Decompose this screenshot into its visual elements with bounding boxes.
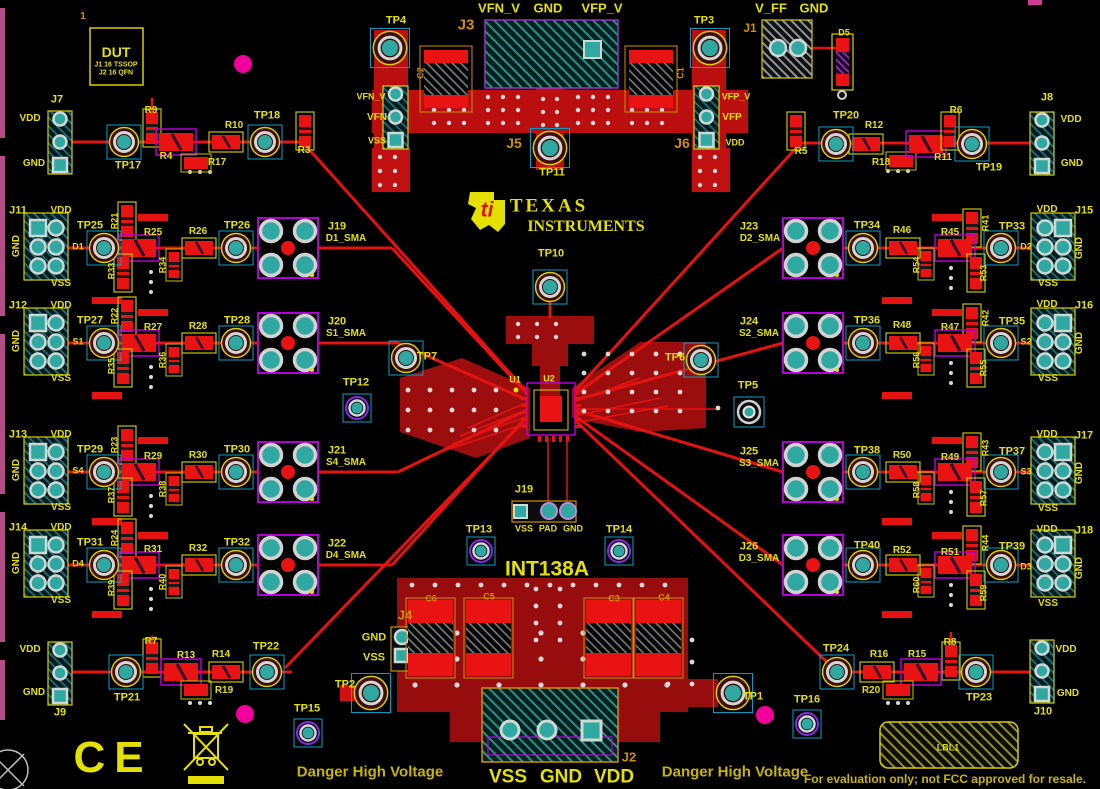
via [606,108,610,112]
via [538,682,543,687]
via [472,408,477,413]
via [654,352,659,357]
copper-shape [692,148,730,192]
sma-pad [820,445,841,466]
connector-pad [1035,687,1049,701]
via [582,352,587,357]
connector-pad [54,667,67,680]
via [645,121,649,125]
via [606,409,611,414]
sma-pad [295,221,316,242]
via [149,494,153,498]
mounting-mark-icon [0,750,28,789]
via [582,371,587,376]
via [591,108,595,112]
sma-center-pin [806,241,820,255]
connector-pad [1036,642,1049,655]
via [496,682,501,687]
via [949,276,953,280]
connector-pad [1055,220,1071,236]
connector-pad [1056,464,1071,479]
sma-pad [295,445,316,466]
connector-pad [1038,221,1053,236]
via [606,371,611,376]
via [149,514,153,518]
sma-pad [295,255,316,276]
connector-pad [1038,354,1053,369]
connector-pad [49,335,64,350]
via [716,406,721,411]
via [188,701,192,705]
via [198,701,202,705]
via [606,390,611,395]
via [501,108,505,112]
copper-pour [572,342,706,432]
connector-pad [30,444,46,460]
connector-pad [1056,483,1071,498]
via [630,371,635,376]
sma-pad [295,538,316,559]
via [486,121,490,125]
via [149,597,153,601]
via [580,682,585,687]
via [516,108,520,112]
connector-pad [389,111,402,124]
via [654,390,659,395]
connector-pad [1056,240,1071,255]
via [580,656,585,661]
connector-pad [1038,464,1053,479]
via [838,91,846,99]
connector-pad [1038,335,1053,350]
via [534,604,539,609]
via [472,388,477,393]
via [516,322,520,326]
connector-pad [54,113,67,126]
via [666,682,671,687]
via [606,95,610,99]
connector-pad [700,88,713,101]
via [622,682,627,687]
via [663,583,668,588]
via [949,500,953,504]
via [949,583,953,587]
via [713,155,717,159]
sma-pad [786,572,807,593]
connector-pad [1056,354,1071,369]
connector-pad [1056,576,1071,591]
sma-pad [786,479,807,500]
via [456,583,461,588]
via [541,110,545,114]
copper-shape [138,437,168,444]
connector-pad [1038,259,1053,274]
copper-shape [0,156,5,316]
via [516,121,520,125]
sma-center-pin [806,465,820,479]
via [949,361,953,365]
via [486,108,490,112]
sma-pad [820,479,841,500]
connector-pad [49,316,64,331]
via [479,583,484,588]
via [535,335,539,339]
via [450,408,455,413]
connector-pad [1038,240,1053,255]
via [654,371,659,376]
copper-shape [882,392,912,399]
via [548,583,553,588]
sma-pad [295,479,316,500]
via [678,352,683,357]
via [149,587,153,591]
connector-pad [700,111,713,124]
via [591,95,595,99]
connector-pad [49,354,64,369]
connector-j19-aux-pad [514,505,527,518]
via [713,169,717,173]
connector-pad [1055,537,1071,553]
connector-j1-pad [790,40,806,56]
sma-pad [820,538,841,559]
via [534,621,539,626]
connector-pad [1055,444,1071,460]
via [501,95,505,99]
via [450,388,455,393]
dut-outline [90,28,143,85]
connector-pad [49,259,64,274]
connector-pad [1036,114,1049,127]
connector-pad [31,335,46,350]
via [555,110,559,114]
sma-pad [786,255,807,276]
copper-shape [92,611,122,618]
sma-center-pin [281,241,295,255]
via [949,371,953,375]
via [501,121,505,125]
connector-pad [389,133,403,147]
sma-center-pin [806,336,820,350]
copper-shape [1028,0,1042,5]
via [690,682,695,687]
via [406,388,411,393]
connector-pad [1038,557,1053,572]
via [698,169,702,173]
copper-shape [138,309,168,316]
connector-pad [49,464,64,479]
via [412,682,417,687]
via [576,121,580,125]
via [640,583,645,588]
sma-pad [261,445,282,466]
via [149,385,153,389]
connector-pad [49,483,64,498]
via [630,390,635,395]
via [591,121,595,125]
via [450,428,455,433]
sma-pad [786,538,807,559]
via [149,280,153,284]
via [630,121,634,125]
via [149,375,153,379]
via [472,428,477,433]
via [494,428,499,433]
sma-pad [261,572,282,593]
via [378,169,382,173]
via [378,155,382,159]
via [580,630,585,635]
sma-pad [786,316,807,337]
via [208,701,212,705]
via [541,97,545,101]
via [630,352,635,357]
via [558,604,563,609]
connector-j4-pad [395,630,409,644]
via [678,390,683,395]
copper-shape [932,214,962,221]
via [555,123,559,127]
ic-u1 [514,388,519,393]
via [949,266,953,270]
via [554,322,558,326]
connector-pad [31,240,46,255]
via [525,583,530,588]
via [406,408,411,413]
connector-pad [31,464,46,479]
connector-pad [1056,259,1071,274]
sma-center-pin [281,336,295,350]
via [949,490,953,494]
sma-pad [295,316,316,337]
connector-pad [1056,557,1071,572]
via [678,409,683,414]
connector-pad [1035,159,1049,173]
via [558,621,563,626]
via [555,97,559,101]
connector-pad [54,136,67,149]
connector-pad [49,538,64,553]
via [594,583,599,588]
connector-pad [1036,665,1049,678]
via [582,409,587,414]
via [378,183,382,187]
copper-shape [932,532,962,539]
sma-pad [820,316,841,337]
connector-pad [1055,315,1071,331]
via [406,428,411,433]
connector-pad [49,240,64,255]
via [538,656,543,661]
connector-pad [30,220,46,236]
via [393,183,397,187]
copper-shape [0,512,5,642]
fiducial-dot [756,706,774,724]
sma-center-pin [281,465,295,479]
connector-j19-aux-pad [541,503,557,519]
connector-pad [49,576,64,591]
via [571,583,576,588]
via [949,381,953,385]
via [630,409,635,414]
sma-pad [820,572,841,593]
copper-shape [138,214,168,221]
connector-pad [1038,316,1053,331]
via [886,701,890,705]
connector-pad [49,221,64,236]
copper-shape [0,8,5,138]
via [149,504,153,508]
via [538,630,543,635]
via [428,388,433,393]
connector-pad [1038,538,1053,553]
sma-pad [786,445,807,466]
via [541,123,545,127]
weee-icon [184,724,228,770]
via [486,95,490,99]
connector-j2-pad [582,721,601,740]
via [606,352,611,357]
via [617,583,622,588]
sma-center-pin [806,558,820,572]
connector-pad [31,483,46,498]
via [678,371,683,376]
via [949,286,953,290]
via [535,322,539,326]
copper-shape [188,776,224,784]
connector-j2-pad [501,721,519,739]
via [558,587,563,592]
via [558,638,563,643]
sma-pad [261,538,282,559]
copper-shape [92,392,122,399]
via [896,701,900,705]
via [393,169,397,173]
via [949,603,953,607]
via [516,335,520,339]
sma-pad [261,221,282,242]
connector-pad [31,259,46,274]
connector-pad [30,537,46,553]
sma-pad [786,221,807,242]
connector-pad [1056,335,1071,350]
via [433,583,438,588]
via [554,335,558,339]
via [690,660,695,665]
copper-shape [138,532,168,539]
via [454,682,459,687]
sma-pad [261,479,282,500]
via [698,183,702,187]
copper-shape [0,660,5,720]
copper-shape [372,148,410,192]
ti-logo-icon [468,192,505,232]
fiducial-dot [234,55,252,73]
via [494,408,499,413]
via [428,428,433,433]
connector-pad [389,88,402,101]
fiducial-dot [236,705,254,723]
connector-pad [31,557,46,572]
via [949,510,953,514]
sma-pad [820,221,841,242]
via [410,583,415,588]
connector-pad [31,576,46,591]
connector-pad [54,644,67,657]
connector-pad [53,689,67,703]
copper-shape [932,309,962,316]
label-box-lbl1 [880,722,1018,768]
via [949,593,953,597]
sma-pad [261,255,282,276]
via [534,638,539,643]
via [906,701,910,705]
via [149,607,153,611]
via [462,121,466,125]
sma-pad [261,316,282,337]
via [428,408,433,413]
via [690,638,695,643]
copper-shape [932,437,962,444]
via [698,155,702,159]
via [447,121,451,125]
connector-j3-pad [584,41,601,58]
via [576,95,580,99]
via [393,155,397,159]
via [713,183,717,187]
connector-pad [30,315,46,331]
connector-pad [700,133,714,147]
via [502,583,507,588]
via [149,365,153,369]
pcb-board: VFN_VGNDVFP_VV_FFGND1DUTJ1 16 TSSOPJ2 16… [0,0,1100,789]
copper-shape [882,518,912,525]
pcb-artwork [0,0,1100,789]
copper-shape [0,334,5,494]
connector-pad [49,445,64,460]
via [660,121,664,125]
via [576,108,580,112]
connector-pad [53,158,67,172]
via [582,390,587,395]
sma-pad [786,350,807,371]
sma-pad [261,350,282,371]
connector-j19-aux-pad [560,503,576,519]
trace [575,416,783,565]
sma-pad [295,350,316,371]
sma-pad [820,350,841,371]
via [149,290,153,294]
connector-j1-pad [770,40,786,56]
connector-pad [1038,576,1053,591]
connector-pad [1038,483,1053,498]
copper-shape [882,297,912,304]
via [516,95,520,99]
sma-center-pin [281,558,295,572]
connector-j2-pad [538,721,556,739]
connector-pad [1036,137,1049,150]
via [149,270,153,274]
sma-pad [295,572,316,593]
connector-pad [1038,445,1053,460]
via [494,388,499,393]
via [432,121,436,125]
connector-pad [31,354,46,369]
sma-pad [820,255,841,276]
via [534,587,539,592]
connector-pad [49,557,64,572]
via [606,121,610,125]
via [654,409,659,414]
